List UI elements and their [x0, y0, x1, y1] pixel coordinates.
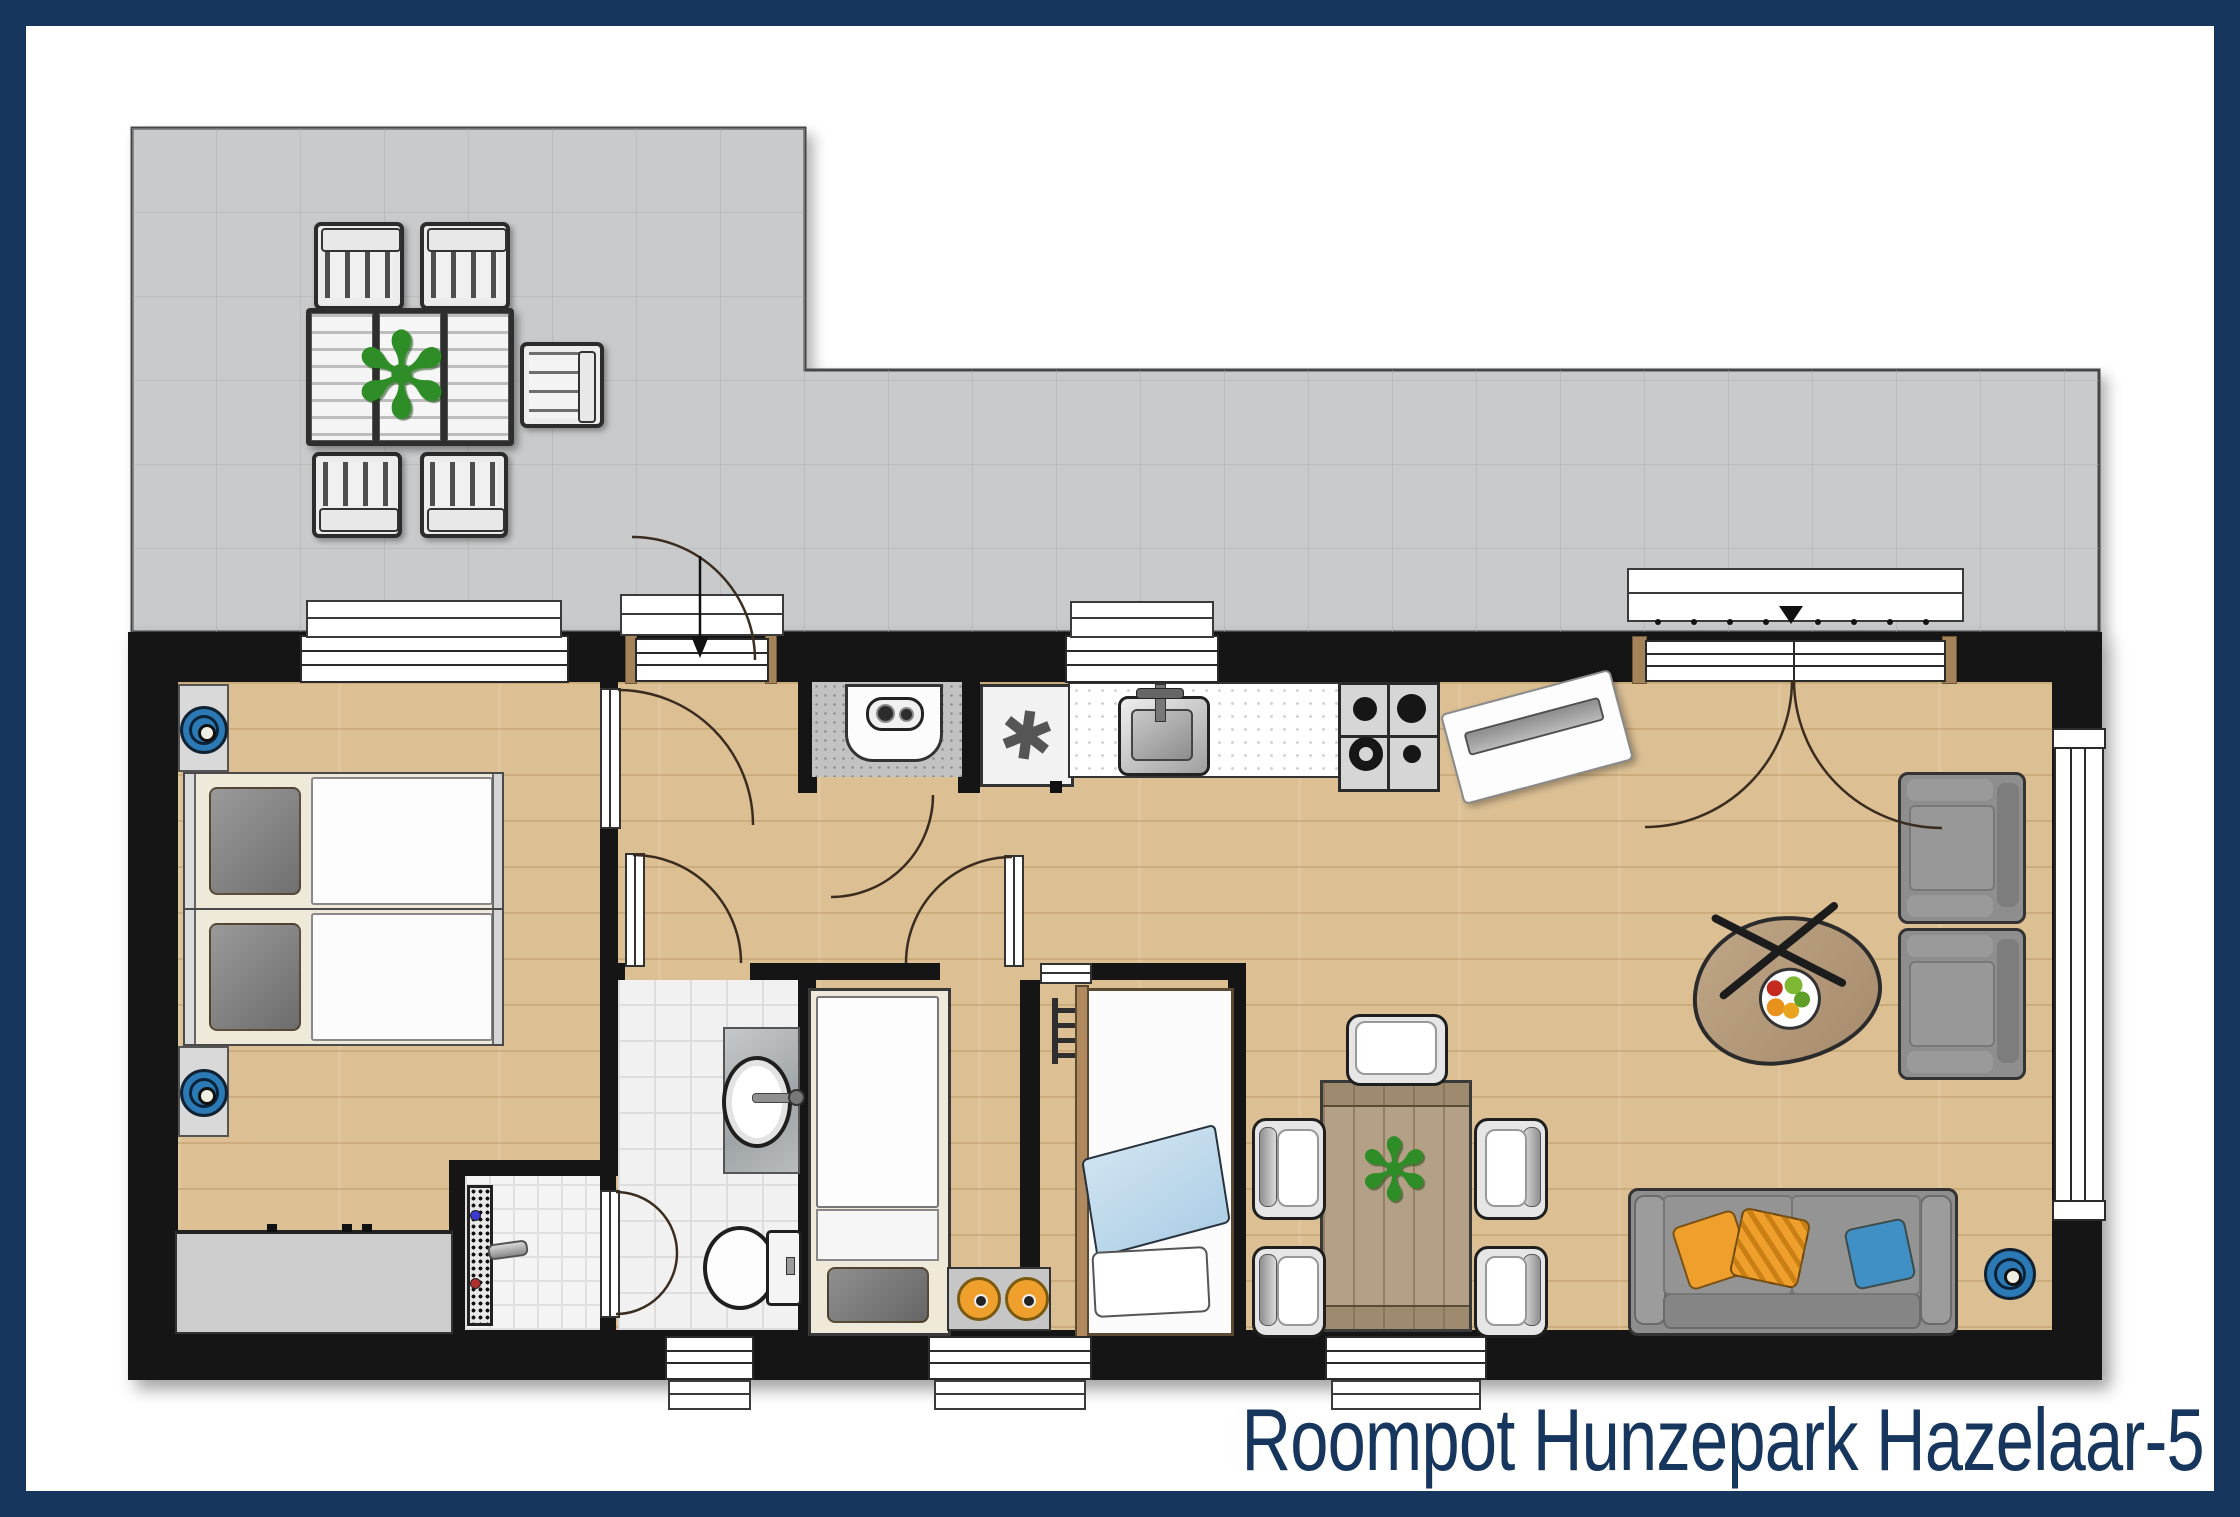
shower-door-arc [616, 1192, 677, 1314]
french-door-arc-right [1794, 680, 1942, 828]
floor-plan-canvas: ✻ [0, 0, 2240, 1517]
bathroom-door-arc [633, 855, 741, 963]
french-door-arrow [1779, 606, 1803, 624]
bedroom1-door-arc [618, 690, 753, 825]
door-swing-arcs [0, 0, 2240, 1517]
plan-title: Roompot Hunzepark Hazelaar-5 [1242, 1389, 2204, 1491]
bedroom2-door-arc [906, 857, 1012, 963]
french-door-arc-left [1645, 680, 1792, 827]
closet-door-arc [831, 795, 933, 897]
entry-arrow-head [691, 636, 709, 658]
